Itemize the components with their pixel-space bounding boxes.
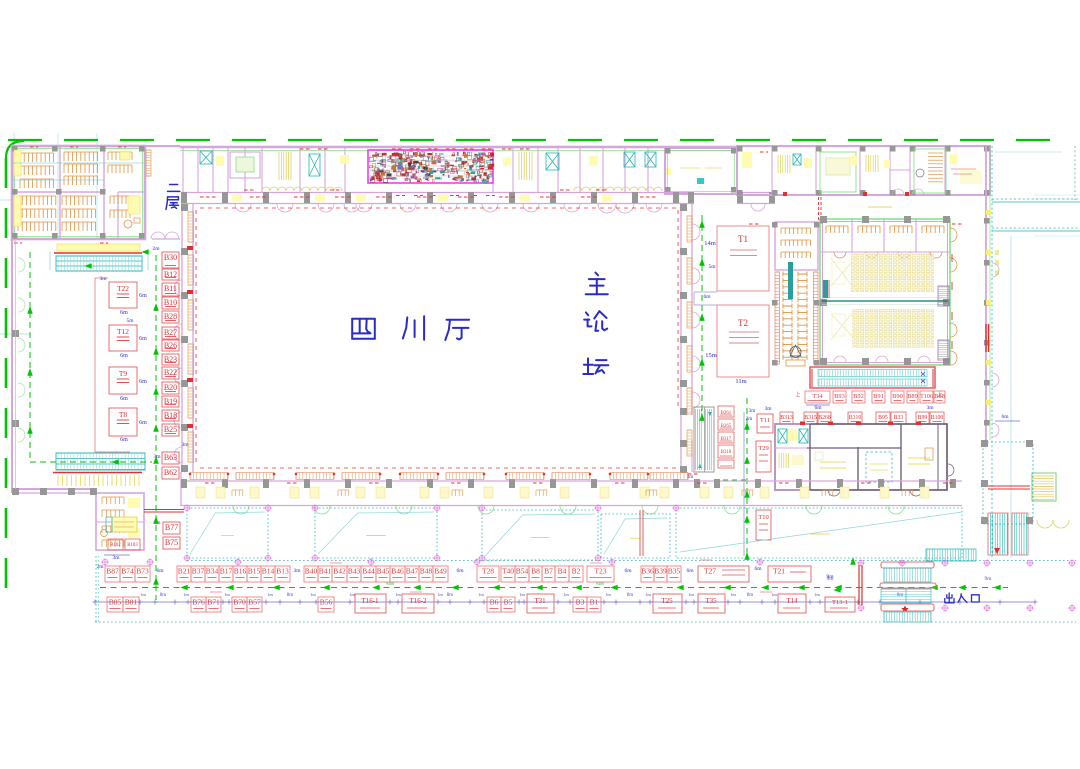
- svg-text:1m: 1m: [563, 592, 569, 597]
- svg-text:6m: 6m: [139, 293, 147, 299]
- svg-text:8m: 8m: [897, 593, 904, 598]
- svg-text:B75: B75: [165, 538, 178, 547]
- svg-text:14m: 14m: [704, 240, 716, 247]
- svg-text:B4: B4: [558, 567, 567, 576]
- svg-text:T23: T23: [594, 567, 606, 576]
- svg-text:B76: B76: [192, 598, 205, 607]
- svg-text:B95: B95: [878, 415, 888, 421]
- svg-text:B37: B37: [192, 567, 205, 576]
- svg-text:B13: B13: [276, 567, 289, 576]
- svg-text:1m: 1m: [140, 592, 146, 597]
- svg-text:B261: B261: [721, 411, 732, 416]
- svg-text:T106: T106: [920, 394, 933, 400]
- svg-text:B54: B54: [516, 567, 529, 576]
- svg-text:1m: 1m: [395, 592, 401, 597]
- svg-text:B34: B34: [206, 567, 219, 576]
- svg-text:9m: 9m: [984, 576, 992, 582]
- svg-text:3m: 3m: [926, 405, 934, 411]
- svg-text:B70: B70: [233, 598, 246, 607]
- svg-text:B90: B90: [892, 393, 903, 400]
- svg-text:B318: B318: [721, 450, 732, 455]
- svg-text:B77: B77: [165, 523, 178, 532]
- svg-text:B44: B44: [362, 567, 375, 576]
- svg-text:T11: T11: [760, 417, 770, 424]
- svg-text:B1: B1: [590, 598, 599, 607]
- svg-text:B103: B103: [127, 543, 138, 548]
- svg-text:B46: B46: [391, 567, 404, 576]
- svg-text:6m: 6m: [703, 294, 711, 300]
- svg-text:3m: 3m: [749, 409, 756, 414]
- svg-text:1m: 1m: [730, 592, 736, 597]
- svg-text:B81: B81: [125, 598, 138, 607]
- svg-text:B73: B73: [136, 567, 149, 576]
- svg-text:T1: T1: [738, 234, 748, 244]
- svg-text:6m: 6m: [156, 568, 164, 574]
- svg-text:B20: B20: [164, 383, 177, 392]
- svg-text:9408: 9408: [596, 581, 604, 586]
- svg-text:8m: 8m: [447, 593, 454, 598]
- svg-text:T22: T22: [117, 284, 129, 293]
- svg-text:上: 上: [795, 391, 800, 398]
- svg-text:1m: 1m: [310, 592, 316, 597]
- svg-text:6m: 6m: [456, 568, 464, 574]
- svg-text:B56: B56: [320, 598, 333, 607]
- svg-text:B7: B7: [544, 567, 553, 576]
- svg-text:上: 上: [937, 391, 942, 398]
- svg-text:6m: 6m: [139, 379, 147, 385]
- svg-text:B310: B310: [849, 415, 862, 421]
- svg-text:B43: B43: [348, 567, 361, 576]
- svg-text:B21: B21: [178, 567, 191, 576]
- svg-text:B41: B41: [319, 567, 332, 576]
- svg-text:6m: 6m: [624, 568, 632, 574]
- svg-text:B22: B22: [164, 368, 177, 377]
- svg-text:B74: B74: [121, 567, 134, 576]
- svg-text:B92: B92: [853, 393, 864, 400]
- svg-text:B71: B71: [207, 598, 220, 607]
- svg-text:6m: 6m: [120, 396, 128, 402]
- svg-text:6m: 6m: [1001, 414, 1009, 420]
- svg-text:T21: T21: [773, 567, 785, 576]
- svg-text:B100: B100: [931, 415, 944, 421]
- svg-text:1m: 1m: [771, 592, 777, 597]
- svg-text:11m: 11m: [735, 378, 746, 385]
- svg-text:T16-1: T16-1: [361, 597, 379, 605]
- svg-text:1m: 1m: [183, 592, 189, 597]
- svg-text:6m: 6m: [139, 420, 147, 426]
- svg-text:3m: 3m: [112, 555, 120, 561]
- svg-text:T9: T9: [119, 369, 128, 378]
- svg-text:T14: T14: [786, 597, 798, 605]
- svg-text:B35: B35: [668, 567, 681, 576]
- svg-text:B25: B25: [164, 425, 177, 434]
- svg-text:B16: B16: [234, 567, 247, 576]
- svg-text:3m: 3m: [99, 276, 107, 282]
- svg-text:6m: 6m: [754, 566, 762, 572]
- svg-text:B268: B268: [818, 415, 831, 421]
- svg-text:3m: 3m: [153, 454, 161, 460]
- svg-text:1m: 1m: [478, 592, 484, 597]
- svg-text:1m: 1m: [688, 592, 694, 597]
- svg-text:B315: B315: [804, 415, 817, 421]
- svg-text:T8: T8: [119, 410, 128, 419]
- svg-text:T25: T25: [661, 597, 673, 605]
- svg-text:1m: 1m: [349, 592, 355, 597]
- svg-text:8m: 8m: [747, 593, 754, 598]
- svg-text:B313: B313: [780, 415, 793, 421]
- svg-text:B6: B6: [490, 598, 499, 607]
- svg-text:6m: 6m: [120, 353, 128, 359]
- svg-text:T40: T40: [502, 567, 514, 576]
- svg-text:15m: 15m: [705, 352, 717, 359]
- svg-text:B3: B3: [576, 598, 585, 607]
- svg-text:T2: T2: [738, 318, 748, 328]
- svg-text:1m: 1m: [267, 592, 273, 597]
- svg-text:B87: B87: [106, 567, 119, 576]
- svg-text:B89: B89: [907, 393, 918, 400]
- svg-text:1m: 1m: [814, 592, 820, 597]
- svg-text:B11: B11: [164, 284, 177, 293]
- svg-text:1m: 1m: [645, 592, 651, 597]
- svg-text:T35: T35: [705, 597, 717, 605]
- svg-text:2m: 2m: [746, 417, 753, 422]
- svg-text:B99: B99: [918, 415, 928, 421]
- svg-text:6m: 6m: [120, 310, 128, 316]
- svg-text:B36: B36: [641, 567, 654, 576]
- svg-text:6m: 6m: [814, 405, 822, 411]
- svg-text:B57: B57: [248, 598, 261, 607]
- svg-text:T16-2: T16-2: [409, 597, 427, 605]
- svg-text:T28: T28: [482, 567, 494, 576]
- svg-text:T13-1: T13-1: [832, 599, 848, 606]
- svg-text:B30: B30: [164, 253, 177, 262]
- svg-text:B47: B47: [406, 567, 419, 576]
- svg-text:B48: B48: [420, 567, 433, 576]
- svg-text:9408: 9408: [386, 581, 394, 586]
- svg-text:B102: B102: [110, 543, 121, 548]
- svg-text:5m: 5m: [708, 264, 716, 270]
- svg-text:B8: B8: [531, 567, 540, 576]
- svg-text:3m: 3m: [764, 406, 772, 412]
- svg-text:8m: 8m: [160, 593, 167, 598]
- svg-text:2m: 2m: [152, 246, 160, 252]
- svg-text:6m: 6m: [686, 568, 694, 574]
- svg-text:B45: B45: [377, 567, 390, 576]
- svg-text:B17: B17: [220, 567, 233, 576]
- svg-text:9m: 9m: [826, 576, 834, 582]
- svg-text:3m: 3m: [181, 442, 189, 448]
- svg-text:T34: T34: [812, 393, 823, 400]
- svg-text:5m: 5m: [126, 318, 134, 324]
- svg-text:B33: B33: [894, 415, 904, 421]
- svg-text:T27: T27: [704, 567, 716, 576]
- svg-text:1m: 1m: [224, 592, 230, 597]
- svg-text:B91: B91: [873, 393, 884, 400]
- svg-text:B265: B265: [721, 424, 732, 429]
- svg-text:8m: 8m: [627, 593, 634, 598]
- svg-text:B27: B27: [164, 328, 177, 337]
- svg-text:B14: B14: [262, 567, 275, 576]
- svg-text:B40: B40: [305, 567, 318, 576]
- svg-text:B15: B15: [248, 567, 261, 576]
- svg-text:B28: B28: [164, 312, 177, 321]
- svg-text:T31: T31: [534, 597, 546, 605]
- svg-text:2m: 2m: [96, 564, 104, 570]
- svg-text:1m: 1m: [605, 592, 611, 597]
- svg-text:B62: B62: [164, 468, 177, 477]
- svg-text:B5: B5: [504, 598, 513, 607]
- svg-text:B63: B63: [164, 453, 177, 462]
- svg-text:T12: T12: [117, 327, 129, 336]
- svg-text:B93: B93: [834, 393, 845, 400]
- svg-text:B2: B2: [572, 567, 581, 576]
- svg-text:B39: B39: [654, 567, 667, 576]
- svg-text:B85: B85: [109, 598, 122, 607]
- svg-text:3m: 3m: [293, 568, 301, 574]
- svg-text:B42: B42: [333, 567, 346, 576]
- svg-text:6m: 6m: [120, 437, 128, 443]
- svg-text:8m: 8m: [287, 593, 294, 598]
- svg-text:B10: B10: [164, 298, 177, 307]
- svg-text:1m: 1m: [437, 592, 443, 597]
- svg-text:T10: T10: [758, 514, 768, 521]
- svg-text:6m: 6m: [139, 336, 147, 342]
- svg-text:T29: T29: [758, 445, 768, 452]
- svg-text:B317: B317: [721, 437, 732, 442]
- svg-text:B49: B49: [434, 567, 447, 576]
- svg-text:1m: 1m: [519, 592, 525, 597]
